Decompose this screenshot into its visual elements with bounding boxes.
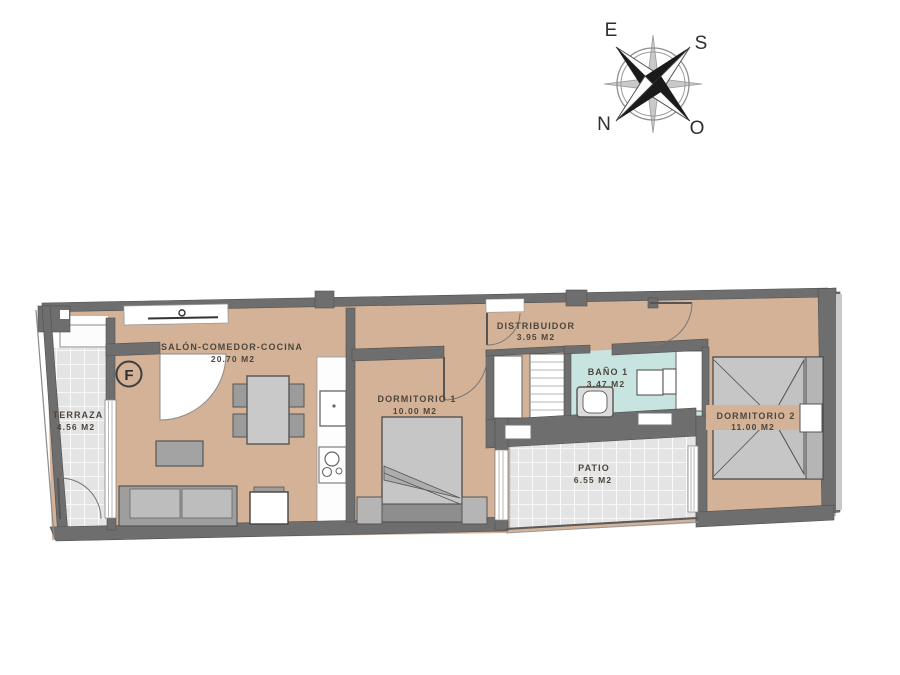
- compass-label-north: N: [597, 114, 611, 135]
- dorm1-bed: [382, 417, 462, 522]
- label-terraza-area: 4.56 M2: [57, 422, 95, 432]
- kitchen-counter: [317, 357, 348, 525]
- dorm2-wardrobe: [676, 351, 705, 411]
- dining-table: [247, 376, 289, 444]
- patio-north-window-small: [505, 425, 531, 439]
- dorm2-nightstand: [800, 404, 822, 432]
- wall-bath-west: [564, 348, 571, 426]
- hall-closet: [492, 356, 522, 418]
- patio-window-east: [688, 446, 698, 512]
- wall-pillar-top-2: [566, 290, 587, 306]
- label-dorm2-name: DORMITORIO 2: [716, 411, 795, 421]
- label-patio-name: PATIO: [578, 463, 610, 473]
- wall-bath-north-a: [564, 345, 590, 354]
- label-terraza-name: TERRAZA: [53, 410, 104, 420]
- dining-chair: [289, 414, 304, 437]
- floor-plan: SALÓN-COMEDOR-COCINA 20.70 M2 TERRAZA 4.…: [36, 288, 842, 541]
- label-salon-name: SALÓN-COMEDOR-COCINA: [161, 341, 303, 352]
- dorm1-nightstand-left: [357, 497, 382, 524]
- compass-label-south: S: [695, 33, 708, 54]
- dining-chair: [233, 384, 248, 407]
- wall-dorm1-north: [352, 346, 444, 361]
- label-bano-name: BAÑO 1: [588, 367, 629, 377]
- label-salon-area: 20.70 M2: [211, 354, 255, 364]
- wall-salon-dorm1: [346, 308, 355, 522]
- wall-pillar-top-1: [315, 291, 334, 308]
- patio-window-west: [495, 450, 508, 520]
- compass-label-east: E: [605, 20, 618, 41]
- kitchen-sink: [320, 391, 346, 426]
- bath-sink: [637, 369, 676, 395]
- floor-plan-canvas: E S N O: [0, 0, 900, 675]
- label-distribuidor-area: 3.95 M2: [517, 332, 555, 342]
- label-distribuidor-name: DISTRIBUIDOR: [497, 321, 575, 331]
- entry-doorway-gap: [486, 299, 524, 313]
- label-patio-area: 6.55 M2: [574, 475, 612, 485]
- wall-right-outer-strip: [836, 294, 842, 510]
- label-bano-area: 3.47 M2: [587, 379, 625, 389]
- sofa: [119, 486, 237, 526]
- side-table: [250, 487, 288, 524]
- kitchen-cooktop: [319, 447, 346, 483]
- salon-window: [124, 304, 228, 325]
- dining-chair: [289, 384, 304, 407]
- dining-chair: [233, 414, 248, 437]
- unit-marker-letter: F: [124, 367, 133, 384]
- wall-terraza-divider: [106, 318, 115, 402]
- wall-entry-stub: [106, 342, 160, 356]
- dorm1-nightstand-right: [462, 497, 487, 524]
- compass-rose: E S N O: [597, 20, 707, 139]
- topleft-block-notch: [60, 310, 69, 319]
- compass-label-west: O: [690, 118, 705, 139]
- tv-sideboard: [156, 441, 203, 466]
- hall-wardrobe-shelved: [530, 354, 568, 418]
- floor-plan-page: E S N O: [0, 0, 900, 675]
- bathroom-window: [638, 413, 672, 425]
- label-dorm2-area: 11.00 M2: [731, 422, 775, 432]
- label-dorm1-area: 10.00 M2: [393, 406, 437, 416]
- terraza-glazing: [105, 400, 116, 518]
- unit-marker: F: [117, 362, 142, 387]
- toilet: [577, 387, 613, 417]
- label-dorm1-name: DORMITORIO 1: [377, 394, 456, 404]
